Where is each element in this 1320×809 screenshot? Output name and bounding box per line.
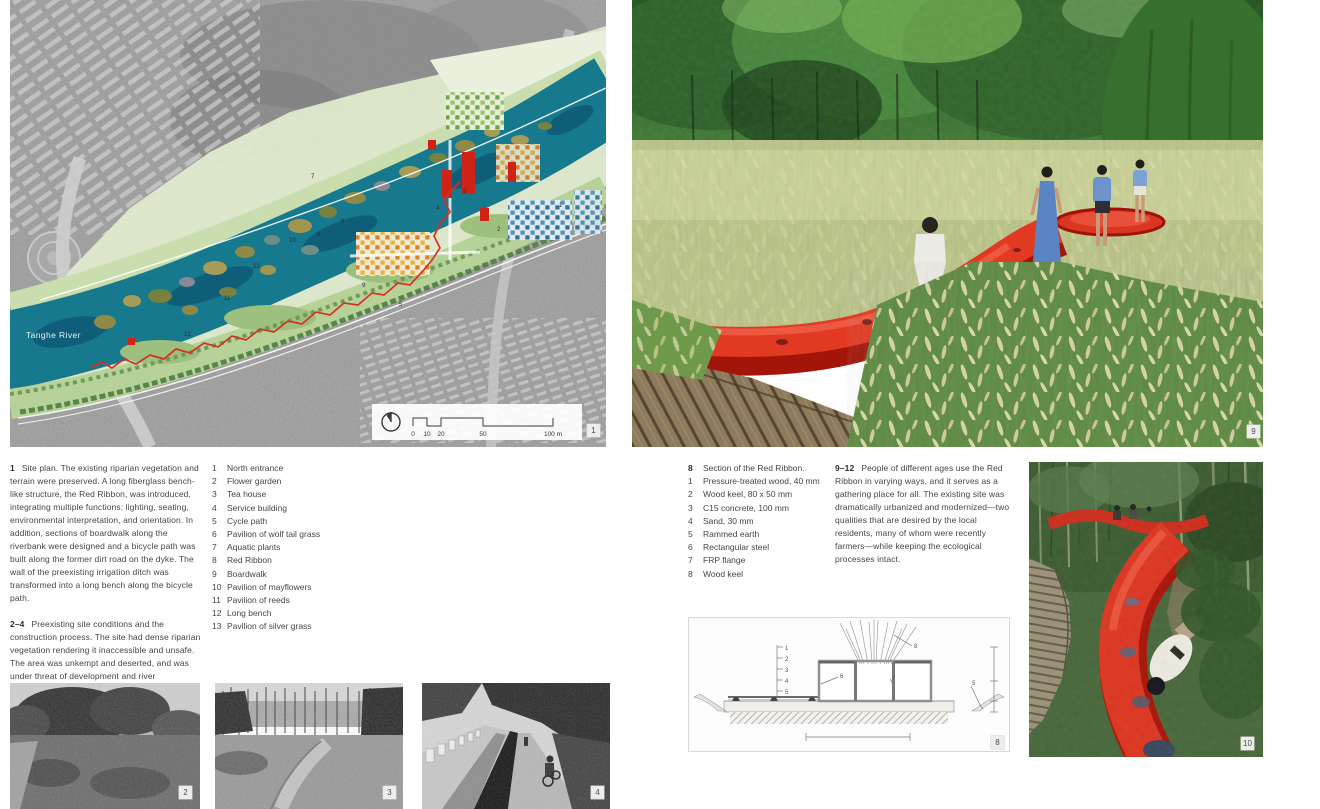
number-label: 10	[289, 238, 296, 244]
legend-item-number: 8	[688, 462, 703, 475]
caption-lead: 1	[10, 463, 15, 473]
legend-item: 9Boardwalk	[212, 568, 347, 581]
legend-item-number: 6	[212, 528, 227, 541]
legend-item: 6Rectangular steel	[688, 541, 833, 554]
section-legend: 8 Section of the Red Ribbon. 1Pressure-t…	[688, 462, 833, 581]
legend-item-number: 1	[688, 475, 703, 488]
legend-item: 3Tea house	[212, 488, 347, 501]
legend-item: 2Wood keel, 80 x 50 mm	[688, 488, 833, 501]
figure-tag: 8	[991, 736, 1004, 749]
legend-item-number: 7	[688, 554, 703, 567]
caption-people: 9–12People of different ages use the Red…	[835, 462, 1013, 566]
scale-tick: 20	[437, 431, 445, 438]
photo-construction	[215, 683, 403, 809]
legend-item-number: 2	[212, 475, 227, 488]
photo-ditch-cyclist	[422, 683, 610, 809]
legend-item-label: Sand, 30 mm	[703, 515, 833, 528]
legend-item-label: Flower garden	[227, 475, 347, 488]
section-drawing-figure: 123456785	[688, 617, 1010, 752]
figure-tag: 9	[1247, 425, 1260, 438]
book-spread: 12345678910111213 Tanghe River 0 10 20 5…	[0, 0, 1320, 809]
site-plan-figure: 12345678910111213 Tanghe River 0 10 20 5…	[10, 0, 606, 447]
legend-item-number: 1	[212, 462, 227, 475]
legend-item-number: 5	[212, 515, 227, 528]
caption-paragraph: 1Site plan. The existing riparian vegeta…	[10, 462, 204, 605]
number-label: 13	[253, 264, 260, 270]
legend-item-label: FRP flange	[703, 554, 833, 567]
legend-item-number: 8	[688, 568, 703, 581]
legend-item: 12Long bench	[212, 607, 347, 620]
legend-item-label: Rectangular steel	[703, 541, 833, 554]
legend-item-number: 9	[212, 568, 227, 581]
legend-item: 4Service building	[212, 502, 347, 515]
planter-box	[819, 661, 931, 701]
legend-item-label: Aquatic plants	[227, 541, 347, 554]
legend-item-label: North entrance	[227, 462, 347, 475]
legend-item: 1Pressure-treated wood, 40 mm	[688, 475, 833, 488]
scale-tick: 50	[479, 431, 487, 438]
caption-site-plan: 1Site plan. The existing riparian vegeta…	[10, 462, 204, 696]
caption-lead: 9–12	[835, 463, 854, 473]
caption-text: Site plan. The existing riparian vegetat…	[10, 463, 199, 603]
legend-item: 11Pavilion of reeds	[212, 594, 347, 607]
legend-item-label: Rammed earth	[703, 528, 833, 541]
legend-item-label: Tea house	[227, 488, 347, 501]
section-legend-header: 8 Section of the Red Ribbon.	[688, 462, 833, 475]
photo-site-vegetation	[10, 683, 200, 809]
legend-item: 1North entrance	[212, 462, 347, 475]
legend-item: 4Sand, 30 mm	[688, 515, 833, 528]
legend-item: 13Pavilion of silver grass	[212, 620, 347, 633]
scale-bar: 0 10 20 50 100 m	[372, 404, 582, 440]
scale-tick: 100 m	[544, 431, 562, 438]
legend-item-label: Pavilion of mayflowers	[227, 581, 347, 594]
legend-item-label: Pressure-treated wood, 40 mm	[703, 475, 833, 488]
legend-item: 3C15 concrete, 100 mm	[688, 502, 833, 515]
photo-person-lying	[1029, 462, 1263, 757]
legend-item-label: Boardwalk	[227, 568, 347, 581]
number-label: 12	[184, 332, 191, 338]
figure-tag: 4	[591, 786, 604, 799]
legend-item-number: 11	[212, 594, 227, 607]
legend-item-number: 4	[212, 502, 227, 515]
legend-item: 6Pavilion of wolf tail grass	[212, 528, 347, 541]
legend-item-label: Wood keel, 80 x 50 mm	[703, 488, 833, 501]
legend-item-label: Pavilion of wolf tail grass	[227, 528, 347, 541]
figure-tag: 2	[179, 786, 192, 799]
site-plan-map: 12345678910111213 Tanghe River 0 10 20 5…	[10, 0, 606, 447]
caption-lead: 2–4	[10, 619, 24, 629]
scale-tick: 10	[423, 431, 431, 438]
legend-item: 8Red Ribbon	[212, 554, 347, 567]
legend-item-label: Section of the Red Ribbon.	[703, 462, 805, 475]
caption-text: People of different ages use the Red Rib…	[835, 463, 1009, 564]
legend-item: 7FRP flange	[688, 554, 833, 567]
legend-item-label: C15 concrete, 100 mm	[703, 502, 833, 515]
legend-item: 10Pavilion of mayflowers	[212, 581, 347, 594]
legend-item-number: 6	[688, 541, 703, 554]
river-label: Tanghe River	[26, 330, 81, 340]
legend-item-number: 2	[688, 488, 703, 501]
legend-item-number: 12	[212, 607, 227, 620]
legend-item-label: Pavilion of silver grass	[227, 620, 347, 633]
legend-item-number: 3	[688, 502, 703, 515]
legend-item-number: 8	[212, 554, 227, 567]
legend-item-label: Pavilion of reeds	[227, 594, 347, 607]
legend-item-number: 10	[212, 581, 227, 594]
legend-item: 5Cycle path	[212, 515, 347, 528]
figure-tag: 3	[383, 786, 396, 799]
legend-item-number: 5	[688, 528, 703, 541]
legend-item-label: Service building	[227, 502, 347, 515]
legend-item-label: Red Ribbon	[227, 554, 347, 567]
figure-tag: 1	[587, 424, 600, 437]
legend-item-number: 13	[212, 620, 227, 633]
legend-item: 7Aquatic plants	[212, 541, 347, 554]
legend-item-label: Long bench	[227, 607, 347, 620]
plan-legend: 1North entrance2Flower garden3Tea house4…	[212, 462, 347, 634]
legend-item-label: Wood keel	[703, 568, 833, 581]
section-legend-items: 1Pressure-treated wood, 40 mm2Wood keel,…	[688, 475, 833, 581]
number-label: 11	[224, 296, 231, 302]
caption-paragraph: 9–12People of different ages use the Red…	[835, 462, 1013, 566]
legend-item: 2Flower garden	[212, 475, 347, 488]
legend-item-label: Cycle path	[227, 515, 347, 528]
scale-tick: 0	[411, 431, 415, 438]
figure-tag: 10	[1241, 737, 1254, 750]
legend-item: 8Wood keel	[688, 568, 833, 581]
legend-item: 5Rammed earth	[688, 528, 833, 541]
legend-item-number: 3	[212, 488, 227, 501]
photo-red-ribbon-people	[632, 0, 1263, 447]
legend-item-number: 4	[688, 515, 703, 528]
legend-item-number: 7	[212, 541, 227, 554]
